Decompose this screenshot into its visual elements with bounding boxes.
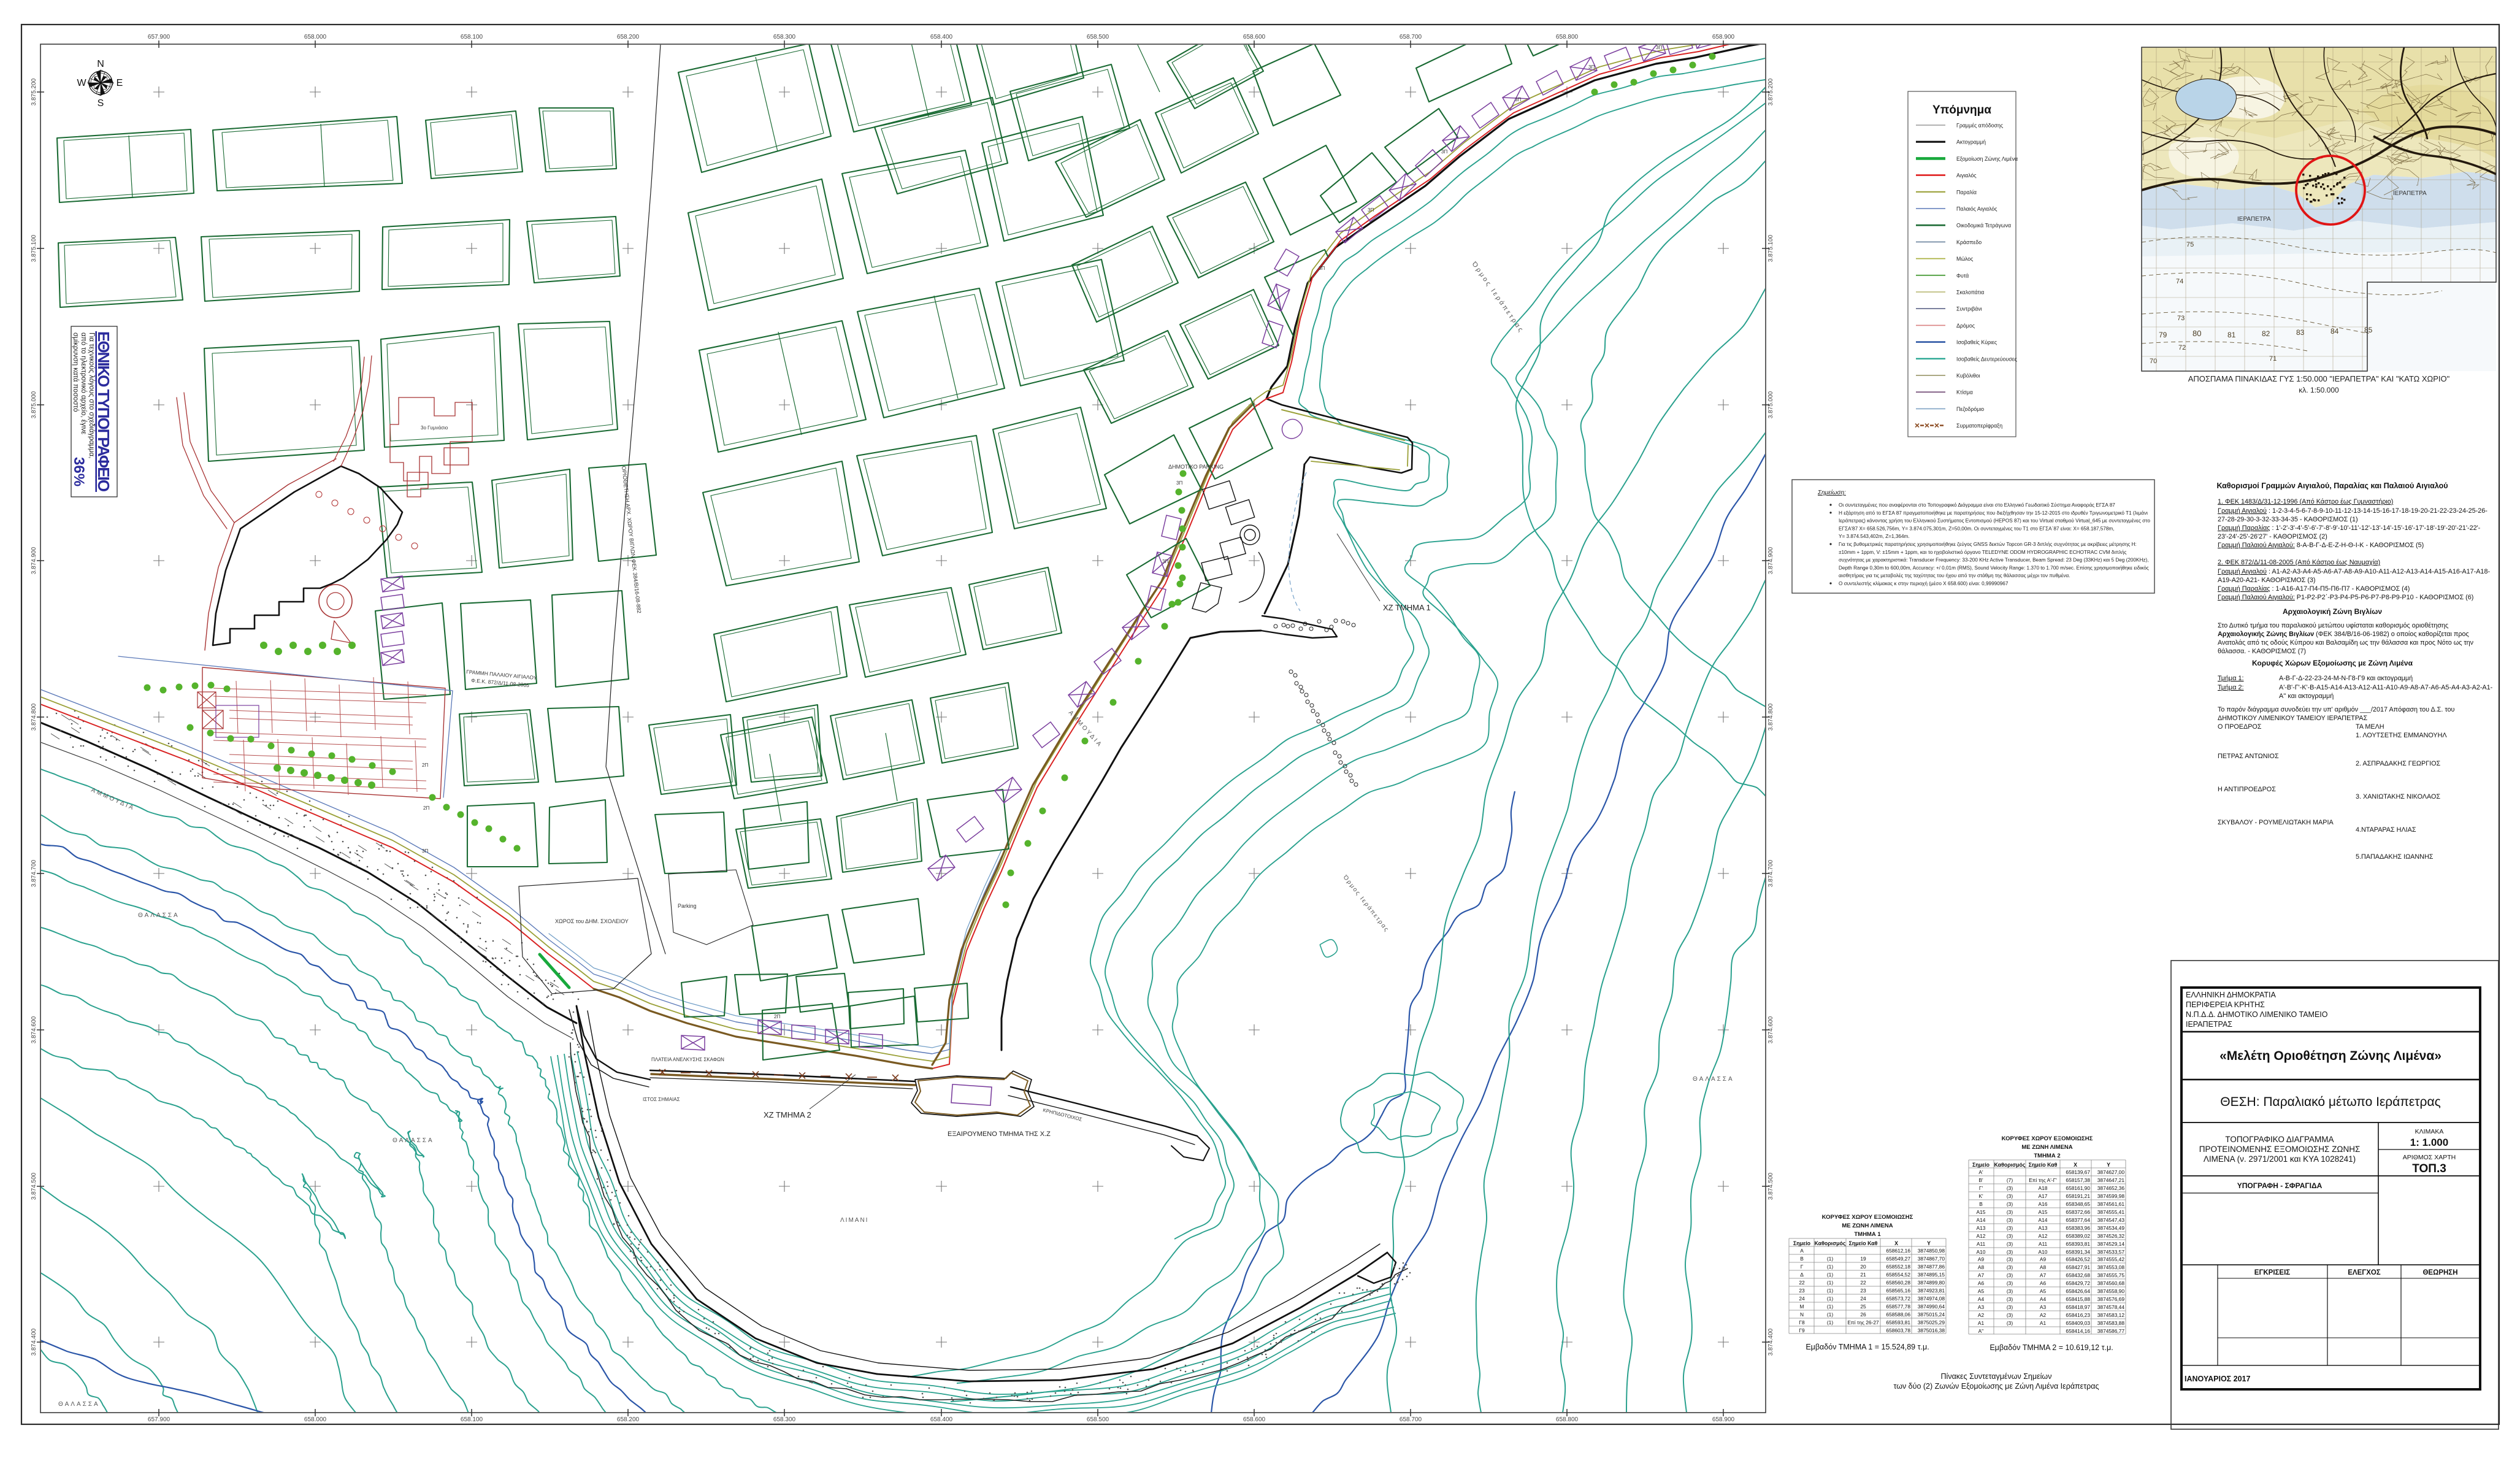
svg-text:ΕΛΛΗΝΙΚΗ ΔΗΜΟΚΡΑΤΙΑ: ΕΛΛΗΝΙΚΗ ΔΗΜΟΚΡΑΤΙΑ (2186, 991, 2276, 999)
svg-text:3Π: 3Π (1441, 149, 1447, 155)
svg-text:Α'-Β'-Γ'-Κ'-Β-Α15-Α14-Α13-Α12-: Α'-Β'-Γ'-Κ'-Β-Α15-Α14-Α13-Α12-Α11-Α10-Α9… (2279, 684, 2493, 691)
svg-text:36%: 36% (71, 457, 87, 486)
svg-text:ΜΕ ΖΩΝΗ ΛΙΜΕΝΑ: ΜΕ ΖΩΝΗ ΛΙΜΕΝΑ (1842, 1222, 1893, 1229)
svg-text:80: 80 (2193, 329, 2201, 338)
svg-text:Α13: Α13 (1977, 1225, 1986, 1231)
svg-text:ΧΩΡΟΣ του ΔΗΜ. ΣΧΟΛΕΙΟΥ: ΧΩΡΟΣ του ΔΗΜ. ΣΧΟΛΕΙΟΥ (555, 918, 629, 924)
svg-text:Γραμμή Παλαιού Αιγιαλού: Ρ1-Ρ: Γραμμή Παλαιού Αιγιαλού: Ρ1-Ρ2-Ρ2΄-Ρ3-Ρ4… (2218, 594, 2473, 601)
svg-text:ΙΕΡΑΠΕΤΡΑ: ΙΕΡΑΠΕΤΡΑ (2237, 216, 2271, 223)
svg-text:Επί της 26-27: Επί της 26-27 (1847, 1319, 1879, 1326)
svg-text:Α11: Α11 (2039, 1241, 2048, 1247)
svg-text:658549,27: 658549,27 (1886, 1256, 1910, 1262)
svg-text:των δύο (2) Ζωνών Εξομοίωσης μ: των δύο (2) Ζωνών Εξομοίωσης με Ζώνη Λιμ… (1893, 1382, 2099, 1391)
svg-text:71: 71 (2269, 355, 2277, 363)
svg-text:Α16: Α16 (2039, 1201, 2048, 1207)
svg-text:3874627,00: 3874627,00 (2097, 1169, 2125, 1175)
svg-text:Ισοβαθείς Δευτερεύουσες: Ισοβαθείς Δευτερεύουσες (1956, 356, 2017, 362)
svg-text:Α3: Α3 (2040, 1304, 2047, 1310)
svg-text:(7): (7) (2007, 1177, 2013, 1183)
svg-text:3874558,90: 3874558,90 (2097, 1288, 2125, 1294)
svg-text:75: 75 (2186, 241, 2194, 248)
svg-text:3.875.100: 3.875.100 (31, 234, 37, 262)
svg-text:Κράσπεδο: Κράσπεδο (1956, 239, 1982, 245)
svg-text:1. ΦΕΚ 1483/Δ/31-12-1996 (Από: 1. ΦΕΚ 1483/Δ/31-12-1996 (Από Κάστρο έως… (2218, 498, 2393, 505)
svg-text:(1): (1) (1827, 1272, 1833, 1278)
svg-text:Α6: Α6 (1978, 1280, 1985, 1286)
svg-text:658.700: 658.700 (1400, 34, 1422, 40)
svg-text:658565,16: 658565,16 (1886, 1288, 1910, 1294)
svg-text:3875016,38: 3875016,38 (1918, 1327, 1945, 1334)
svg-text:658418,97: 658418,97 (2066, 1304, 2090, 1310)
svg-text:3Π: 3Π (1176, 480, 1182, 486)
svg-text:Α2: Α2 (2040, 1312, 2047, 1318)
svg-text:2. ΦΕΚ 872/Δ/11-08-2005 (Από Κ: 2. ΦΕΚ 872/Δ/11-08-2005 (Από Κάστρο έως … (2218, 559, 2380, 566)
svg-text:ΣΚΥΒΑΛΟΥ - ΡΟΥΜΕΛΙΩΤΑΚΗ ΜΑΡΙΑ: ΣΚΥΒΑΛΟΥ - ΡΟΥΜΕΛΙΩΤΑΚΗ ΜΑΡΙΑ (2218, 819, 2334, 826)
svg-text:658554,52: 658554,52 (1886, 1272, 1910, 1278)
svg-text:ΠΡΟΤΕΙΝΟΜΕΝΗΣ ΕΞΟΜΟΙΩΣΗΣ ΖΩΝΗΣ: ΠΡΟΤΕΙΝΟΜΕΝΗΣ ΕΞΟΜΟΙΩΣΗΣ ΖΩΝΗΣ (2199, 1145, 2361, 1154)
svg-text:20: 20 (1860, 1264, 1866, 1270)
svg-text:3874974,08: 3874974,08 (1918, 1295, 1945, 1302)
svg-text:Ν: Ν (1800, 1311, 1804, 1318)
svg-text:Y: Y (1927, 1240, 1931, 1246)
svg-text:E: E (117, 78, 123, 88)
svg-text:3874529,14: 3874529,14 (2097, 1241, 2125, 1247)
svg-text:ΑΠΟΣΠΑΜΑ ΠΙΝΑΚΙΔΑΣ ΓΥΣ 1:50.00: ΑΠΟΣΠΑΜΑ ΠΙΝΑΚΙΔΑΣ ΓΥΣ 1:50.000 "ΙΕΡΑΠΕΤ… (2188, 374, 2450, 383)
svg-text:Α9: Α9 (2040, 1256, 2047, 1262)
svg-text:ΙΣΤΟΣ ΣΗΜΑΙΑΣ: ΙΣΤΟΣ ΣΗΜΑΙΑΣ (643, 1097, 680, 1102)
svg-text:2Π: 2Π (422, 762, 428, 768)
svg-text:ΥΠΟΓΡΑΦΗ - ΣΦΡΑΓΙΔΑ: ΥΠΟΓΡΑΦΗ - ΣΦΡΑΓΙΔΑ (2237, 1181, 2323, 1190)
svg-text:22: 22 (1860, 1280, 1866, 1286)
svg-text:658377,64: 658377,64 (2066, 1217, 2090, 1223)
svg-text:ΚΟΡΥΦΕΣ ΧΩΡΟΥ ΕΞΟΜΟΙΩΣΗΣ: ΚΟΡΥΦΕΣ ΧΩΡΟΥ ΕΞΟΜΟΙΩΣΗΣ (2002, 1135, 2093, 1142)
svg-text:ΕΛΕΓΧΟΣ: ΕΛΕΓΧΟΣ (2348, 1269, 2381, 1276)
svg-text:ΘΑΛΑΣΣΑ: ΘΑΛΑΣΣΑ (393, 1137, 434, 1144)
svg-text:Α11: Α11 (1977, 1241, 1986, 1247)
svg-text:Υ= 3.874.543,402m, Ζ=1,364m.: Υ= 3.874.543,402m, Ζ=1,364m. (1839, 534, 1910, 539)
svg-text:3.875.200: 3.875.200 (31, 78, 37, 106)
svg-text:21: 21 (1860, 1272, 1866, 1278)
svg-text:ΚΟΡΥΦΕΣ ΧΩΡΟΥ ΕΞΟΜΟΙΩΣΗΣ: ΚΟΡΥΦΕΣ ΧΩΡΟΥ ΕΞΟΜΟΙΩΣΗΣ (1822, 1214, 1913, 1221)
svg-text:Α9: Α9 (1978, 1256, 1985, 1262)
svg-text:(3): (3) (2007, 1296, 2013, 1302)
svg-text:658.500: 658.500 (1087, 34, 1109, 40)
svg-text:(1): (1) (1827, 1295, 1833, 1302)
svg-text:Α-Β-Γ-Δ-22-23-24-Μ-Ν-Γ8-Γ9 και: Α-Β-Γ-Δ-22-23-24-Μ-Ν-Γ8-Γ9 και ακτογραμμ… (2279, 675, 2413, 682)
svg-text:Συρματοπερίφραξη: Συρματοπερίφραξη (1956, 423, 2002, 429)
svg-text:658573,72: 658573,72 (1886, 1295, 1910, 1302)
svg-text:Κτίσμα: Κτίσμα (1956, 390, 1973, 396)
svg-text:ΔΗΜΟΤΙΚΟΥ ΛΙΜΕΝΙΚΟΥ ΤΑΜΕΙΟΥ ΙΕ: ΔΗΜΟΤΙΚΟΥ ΛΙΜΕΝΙΚΟΥ ΤΑΜΕΙΟΥ ΙΕΡΑΠΕΤΡΑΣ (2218, 715, 2368, 722)
svg-text:658161,90: 658161,90 (2066, 1185, 2090, 1191)
svg-text:Σημείο: Σημείο (1972, 1162, 1990, 1168)
svg-text:3874850,98: 3874850,98 (1918, 1248, 1945, 1254)
svg-text:ΘΕΣΗ: Παραλιακό μέτωπο Ιεράπετ: ΘΕΣΗ: Παραλιακό μέτωπο Ιεράπετρας (2220, 1095, 2441, 1109)
svg-text:(1): (1) (1827, 1311, 1833, 1318)
svg-text:Γραμμή Αιγιαλού : Α1-Α2-Α3-Α4: Γραμμή Αιγιαλού : Α1-Α2-Α3-Α4-Α5-Α6-Α7-Α… (2218, 568, 2490, 575)
svg-text:Α6: Α6 (2040, 1280, 2047, 1286)
svg-text:658416,23: 658416,23 (2066, 1312, 2090, 1318)
svg-text:(1): (1) (1827, 1319, 1833, 1326)
svg-text:Α7: Α7 (1978, 1272, 1985, 1278)
svg-text:X: X (1894, 1240, 1898, 1246)
svg-text:Οι συντεταγμένες που αναφέροντ: Οι συντεταγμένες που αναφέρονται στο Τοπ… (1839, 502, 2115, 508)
svg-text:658391,34: 658391,34 (2066, 1249, 2090, 1255)
svg-text:Α8: Α8 (1978, 1264, 1985, 1270)
svg-text:(3): (3) (2007, 1264, 2013, 1270)
svg-text:3. ΧΑΝΙΩΤΑΚΗΣ ΝΙΚΟΛΑΟΣ: 3. ΧΑΝΙΩΤΑΚΗΣ ΝΙΚΟΛΑΟΣ (2356, 793, 2440, 800)
svg-text:(3): (3) (2007, 1201, 2013, 1207)
svg-text:Α'' και ακτογραμμή: Α'' και ακτογραμμή (2279, 693, 2334, 700)
svg-text:ΚΛΙΜΑΚΑ: ΚΛΙΜΑΚΑ (2415, 1128, 2444, 1135)
svg-text:658.300: 658.300 (773, 34, 796, 40)
svg-text:Α7: Α7 (2040, 1272, 2047, 1278)
svg-text:Δρόμος: Δρόμος (1956, 323, 1975, 329)
svg-text:Εξομοίωση Ζώνης Λιμένα: Εξομοίωση Ζώνης Λιμένα (1956, 156, 2018, 162)
svg-text:3874652,36: 3874652,36 (2097, 1185, 2125, 1191)
svg-text:658348,65: 658348,65 (2066, 1201, 2090, 1207)
svg-text:ΠΛΑΤΕΙΑ ΑΝΕΛΚΥΣΗΣ ΣΚΑΦΩΝ: ΠΛΑΤΕΙΑ ΑΝΕΛΚΥΣΗΣ ΣΚΑΦΩΝ (651, 1057, 724, 1062)
svg-text:3874576,69: 3874576,69 (2097, 1296, 2125, 1302)
svg-text:3.875.000: 3.875.000 (31, 391, 37, 418)
svg-text:2. ΑΣΠΡΑΔΑΚΗΣ ΓΕΩΡΓΙΟΣ: 2. ΑΣΠΡΑΔΑΚΗΣ ΓΕΩΡΓΙΟΣ (2356, 760, 2441, 767)
svg-text:658139,67: 658139,67 (2066, 1169, 2090, 1175)
svg-text:ΘΑΛΑΣΣΑ: ΘΑΛΑΣΣΑ (1693, 1076, 1734, 1083)
svg-text:Ανατολάς από τις οδούς Κύπρου: Ανατολάς από τις οδούς Κύπρου και Βαλσαμ… (2218, 639, 2473, 647)
svg-text:ΑΡΙΘΜΟΣ ΧΑΡΤΗ: ΑΡΙΘΜΟΣ ΧΑΡΤΗ (2403, 1154, 2456, 1161)
svg-text:23'-24'-25'-26'27' - ΚΑΘΟΡΙΣΜΟ: 23'-24'-25'-26'27' - ΚΑΘΟΡΙΣΜΟΣ (2) (2218, 533, 2327, 540)
svg-text:658.000: 658.000 (304, 1416, 327, 1423)
svg-text:(1): (1) (1827, 1280, 1833, 1286)
svg-text:Α': Α' (1978, 1169, 1983, 1175)
svg-text:3ο Γυμνάσιο: 3ο Γυμνάσιο (421, 425, 448, 431)
svg-text:84: 84 (2330, 327, 2339, 336)
svg-text:Ο ΠΡΟΕΔΡΟΣ: Ο ΠΡΟΕΔΡΟΣ (2218, 723, 2262, 731)
svg-text:82: 82 (2262, 329, 2270, 338)
svg-text:Σκαλοπάτια: Σκαλοπάτια (1956, 290, 1984, 296)
svg-text:Depth Range 0,30m to 600,00m,: Depth Range 0,30m to 600,00m, Accuracy: … (1839, 565, 2149, 570)
svg-text:Τμήμα 1:: Τμήμα 1: (2218, 675, 2244, 682)
svg-text:72: 72 (2178, 344, 2186, 351)
svg-text:73: 73 (2177, 315, 2185, 322)
svg-text:27-28-29-30-3-32-33-34-35 - ΚΑ: 27-28-29-30-3-32-33-34-35 - ΚΑΘΟΡΙΣΜΟΣ (… (2218, 516, 2358, 523)
svg-text:(3): (3) (2007, 1272, 2013, 1278)
svg-text:Αιγιαλός: Αιγιαλός (1956, 172, 1977, 178)
svg-text:Α: Α (1800, 1248, 1804, 1254)
svg-text:Καθορισμός: Καθορισμός (1815, 1240, 1846, 1246)
svg-text:Β': Β' (1978, 1177, 1983, 1183)
svg-text:3874555,75: 3874555,75 (2097, 1272, 2125, 1278)
svg-text:658427,91: 658427,91 (2066, 1264, 2090, 1270)
svg-text:(3): (3) (2007, 1256, 2013, 1262)
svg-text:3Π: 3Π (1319, 266, 1325, 271)
svg-text:ΤΜΗΜΑ 2: ΤΜΗΜΑ 2 (2034, 1153, 2060, 1159)
svg-text:658.200: 658.200 (617, 1416, 640, 1423)
svg-text:από το ηλεκτρονικό αρχείο, έγι: από το ηλεκτρονικό αρχείο, έγινε (80, 332, 87, 434)
svg-text:3874586,77: 3874586,77 (2097, 1328, 2125, 1334)
svg-text:ΜΕ ΖΩΝΗ ΛΙΜΕΝΑ: ΜΕ ΖΩΝΗ ΛΙΜΕΝΑ (2021, 1144, 2072, 1151)
svg-text:81: 81 (2227, 331, 2236, 339)
svg-text:Το παρόν διάγραμμα συνοδεύει τ: Το παρόν διάγραμμα συνοδεύει την υπ' αρι… (2218, 706, 2454, 713)
svg-text:Παλαιός Αιγιαλός: Παλαιός Αιγιαλός (1956, 206, 1997, 212)
svg-text:658.500: 658.500 (1087, 1416, 1109, 1423)
svg-text:Parking: Parking (678, 903, 697, 909)
svg-text:S: S (98, 98, 104, 109)
svg-text:ΧΖ ΤΜΗΜΑ 2: ΧΖ ΤΜΗΜΑ 2 (764, 1110, 811, 1119)
svg-text:658.400: 658.400 (930, 34, 953, 40)
svg-text:Ν.Π.Δ.Δ. ΔΗΜΟΤΙΚΟ ΛΙΜΕΝΙΚΟ ΤΑΜ: Ν.Π.Δ.Δ. ΔΗΜΟΤΙΚΟ ΛΙΜΕΝΙΚΟ ΤΑΜΕΙΟ (2186, 1010, 2328, 1019)
svg-text:658414,16: 658414,16 (2066, 1328, 2090, 1334)
svg-text:Παραλία: Παραλία (1956, 189, 1977, 195)
svg-text:Α'': Α'' (1978, 1328, 1984, 1334)
svg-text:ΛΙΜΕΝΑ (ν. 2971/2001 και ΚΥΑ 1: ΛΙΜΕΝΑ (ν. 2971/2001 και ΚΥΑ 1028241) (2204, 1154, 2356, 1164)
svg-text:Σημείο Καθ: Σημείο Καθ (1849, 1240, 1878, 1246)
svg-text:79: 79 (2159, 331, 2167, 339)
svg-text:658191,21: 658191,21 (2066, 1193, 2090, 1199)
svg-text:ΔΗΜΟΤΙΚΟ PARKING: ΔΗΜΟΤΙΚΟ PARKING (1168, 464, 1224, 470)
svg-text:συχνότητας με χαρακτηριστικά:: συχνότητας με χαρακτηριστικά: Transducer… (1839, 558, 2149, 563)
svg-text:658.600: 658.600 (1243, 34, 1266, 40)
svg-text:24: 24 (1860, 1295, 1866, 1302)
svg-text:Γ8: Γ8 (1799, 1319, 1805, 1326)
svg-text:3874555,42: 3874555,42 (2097, 1256, 2125, 1262)
svg-text:658560,28: 658560,28 (1886, 1280, 1910, 1286)
svg-text:3Π: 3Π (1162, 559, 1168, 564)
svg-text:(1): (1) (1827, 1303, 1833, 1310)
svg-text:658383,96: 658383,96 (2066, 1225, 2090, 1231)
svg-text:Σημείο: Σημείο (1793, 1240, 1811, 1246)
svg-text:ΙΕΡΑΠΕΤΡΑΣ: ΙΕΡΑΠΕΤΡΑΣ (2186, 1020, 2232, 1029)
svg-text:658588,06: 658588,06 (1886, 1311, 1910, 1318)
svg-text:Y: Y (2107, 1162, 2110, 1168)
svg-text:3874555,41: 3874555,41 (2097, 1209, 2125, 1215)
svg-text:Καθορισμός: Καθορισμός (1994, 1162, 2026, 1168)
svg-text:(3): (3) (2007, 1312, 2013, 1318)
svg-text:658157,38: 658157,38 (2066, 1177, 2090, 1183)
svg-text:Α10: Α10 (2039, 1249, 2048, 1255)
svg-text:(3): (3) (2007, 1217, 2013, 1223)
svg-text:Α13: Α13 (2039, 1225, 2048, 1231)
svg-text:3.874.600: 3.874.600 (31, 1016, 37, 1043)
svg-text:Επί της Α'-Γ': Επί της Α'-Γ' (2029, 1177, 2057, 1183)
svg-text:658612,16: 658612,16 (1886, 1248, 1910, 1254)
svg-text:N: N (97, 59, 104, 69)
svg-text:2Π: 2Π (423, 805, 429, 811)
svg-text:ΠΕΤΡΑΣ ΑΝΤΩΝΙΟΣ: ΠΕΤΡΑΣ ΑΝΤΩΝΙΟΣ (2218, 753, 2279, 760)
svg-text:25: 25 (1860, 1303, 1866, 1310)
svg-text:3875015,24: 3875015,24 (1918, 1311, 1945, 1318)
svg-text:Πεζοδρόμιο: Πεζοδρόμιο (1956, 406, 1984, 412)
svg-text:658.900: 658.900 (1712, 34, 1735, 40)
svg-text:Κορυφές Χώρων Εξομοίωσης με Ζώ: Κορυφές Χώρων Εξομοίωσης με Ζώνη Λιμένα (2252, 659, 2413, 667)
svg-text:2Π: 2Π (774, 1014, 780, 1019)
svg-text:ΙΑΝΟΥΑΡΙΟΣ 2017: ΙΑΝΟΥΑΡΙΟΣ 2017 (2185, 1375, 2250, 1383)
svg-text:(3): (3) (2007, 1304, 2013, 1310)
svg-text:Σημείωση:: Σημείωση: (1817, 489, 1846, 496)
svg-text:3.874.400: 3.874.400 (31, 1328, 37, 1356)
svg-text:Γραμμές απόδοσης: Γραμμές απόδοσης (1956, 123, 2003, 129)
svg-text:Β: Β (1979, 1201, 1983, 1207)
svg-text:3874899,80: 3874899,80 (1918, 1280, 1945, 1286)
svg-text:(3): (3) (2007, 1233, 2013, 1239)
svg-text:658603,78: 658603,78 (1886, 1327, 1910, 1334)
svg-text:ΘΑΛΑΣΣΑ: ΘΑΛΑΣΣΑ (138, 912, 180, 919)
svg-text:Οικοδομικά Τετράγωνα: Οικοδομικά Τετράγωνα (1956, 223, 2011, 229)
svg-text:3.874.500: 3.874.500 (31, 1172, 37, 1200)
svg-text:(3): (3) (2007, 1193, 2013, 1199)
svg-text:23: 23 (1799, 1288, 1805, 1294)
svg-text:Α15: Α15 (2039, 1209, 2048, 1215)
svg-text:658426,52: 658426,52 (2066, 1256, 2090, 1262)
svg-text:Ο συντελεστής κλίμακας κ στην: Ο συντελεστής κλίμακας κ στην περιοχή (μ… (1839, 581, 2009, 586)
svg-text:658393,81: 658393,81 (2066, 1241, 2090, 1247)
svg-text:3874560,68: 3874560,68 (2097, 1280, 2125, 1286)
svg-text:Γραμμή Αιγιαλού : 1-2-3-4-5-6-: Γραμμή Αιγιαλού : 1-2-3-4-5-6-7-8-9-10-1… (2218, 507, 2487, 515)
svg-text:θάλασσα. - ΚΑΘΟΡΙΣΜΟΣ (7): θάλασσα. - ΚΑΘΟΡΙΣΜΟΣ (7) (2218, 648, 2306, 655)
svg-text:(1): (1) (1827, 1288, 1833, 1294)
svg-text:658.600: 658.600 (1243, 1416, 1266, 1423)
svg-text:W: W (77, 78, 86, 88)
svg-text:658389,02: 658389,02 (2066, 1233, 2090, 1239)
svg-text:3.874.800: 3.874.800 (31, 703, 37, 731)
svg-text:Α12: Α12 (1977, 1233, 1986, 1239)
svg-text:Α19-Α20-Α21- ΚΑΘΟΡΙΣΜΟΣ (3): Α19-Α20-Α21- ΚΑΘΟΡΙΣΜΟΣ (3) (2218, 577, 2316, 584)
svg-text:Φυτά: Φυτά (1956, 272, 1969, 278)
svg-text:ΕΞΑΙΡΟΥΜΕΝΟ ΤΜΗΜΑ ΤΗΣ Χ.Ζ: ΕΞΑΙΡΟΥΜΕΝΟ ΤΜΗΜΑ ΤΗΣ Χ.Ζ (948, 1130, 1051, 1138)
svg-text:(3): (3) (2007, 1320, 2013, 1326)
svg-text:658.700: 658.700 (1400, 1416, 1422, 1423)
svg-text:Α8: Α8 (2040, 1264, 2047, 1270)
svg-text:Α10: Α10 (1977, 1249, 1986, 1255)
svg-text:657.900: 657.900 (148, 34, 170, 40)
svg-text:Γραμμή Παραλίας : 1-Α16-Α17-Π4: Γραμμή Παραλίας : 1-Α16-Α17-Π4-Π5-Π6-Π7 … (2218, 585, 2410, 593)
svg-text:ΕΓΚΡΙΣΕΙΣ: ΕΓΚΡΙΣΕΙΣ (2254, 1269, 2291, 1276)
svg-text:3874583,12: 3874583,12 (2097, 1312, 2125, 1318)
svg-text:3Π: 3Π (1588, 64, 1595, 70)
svg-text:ΕΓΣΑ'87 Χ= 658.526,756m, Υ= 3.: ΕΓΣΑ'87 Χ= 658.526,756m, Υ= 3.874.075,30… (1839, 525, 2115, 531)
svg-text:3874533,57: 3874533,57 (2097, 1249, 2125, 1255)
svg-text:«Μελέτη Οριοθέτηση Ζώνης Λιμέ: «Μελέτη Οριοθέτηση Ζώνης Λιμένα» (2219, 1049, 2441, 1063)
svg-text:ΤΑ ΜΕΛΗ: ΤΑ ΜΕΛΗ (2356, 723, 2384, 731)
svg-text:3874578,44: 3874578,44 (2097, 1304, 2125, 1310)
svg-text:Ιεράπετρας) κάνοντας χρήση του: Ιεράπετρας) κάνοντας χρήση του Ελληνικού… (1839, 518, 2150, 524)
svg-text:(1): (1) (1827, 1264, 1833, 1270)
svg-text:3Π: 3Π (1656, 45, 1662, 50)
svg-text:Η εξάρτηση από το ΕΓΣΑ 87 πραγ: Η εξάρτηση από το ΕΓΣΑ 87 πραγματοποιήθη… (1839, 510, 2148, 516)
svg-text:Δ: Δ (1800, 1272, 1804, 1278)
svg-text:Α3: Α3 (1978, 1304, 1985, 1310)
svg-text:Πίνακες Συντεταγμένων Σημείων: Πίνακες Συντεταγμένων Σημείων (1941, 1372, 2052, 1381)
svg-text:658593,81: 658593,81 (1886, 1319, 1910, 1326)
svg-text:Κυβόλιθοι: Κυβόλιθοι (1956, 373, 1980, 379)
svg-text:Μώλος: Μώλος (1956, 256, 1973, 262)
svg-text:Α5: Α5 (2040, 1288, 2047, 1294)
svg-text:3875025,29: 3875025,29 (1918, 1319, 1945, 1326)
svg-text:(1): (1) (1827, 1256, 1833, 1262)
svg-text:3.874.700: 3.874.700 (31, 859, 37, 887)
svg-text:658552,18: 658552,18 (1886, 1264, 1910, 1270)
svg-text:Τμήμα 2:: Τμήμα 2: (2218, 684, 2244, 691)
svg-text:3874526,32: 3874526,32 (2097, 1233, 2125, 1239)
svg-text:Αρχαιολογική Ζώνη Βιγλίων: Αρχαιολογική Ζώνη Βιγλίων (2283, 607, 2382, 616)
svg-text:ΕΘΝΙΚΟ ΤΥΠΟΓΡΑΦΕΙΟ: ΕΘΝΙΚΟ ΤΥΠΟΓΡΑΦΕΙΟ (94, 331, 113, 492)
svg-text:Γραμμή Παλαιού Αιγιαλού: 8-Α-: Γραμμή Παλαιού Αιγιαλού: 8-Α-Β-Γ-Δ-Ε-Ζ-Η… (2218, 542, 2424, 549)
svg-text:1: 1.000: 1: 1.000 (2410, 1137, 2448, 1148)
svg-text:657.900: 657.900 (148, 1416, 170, 1423)
svg-text:3874534,49: 3874534,49 (2097, 1225, 2125, 1231)
svg-text:±10mm + 1ppm, V: ±15mm + 1ppm,: ±10mm + 1ppm, V: ±15mm + 1ppm, και το ηχ… (1839, 550, 2127, 555)
svg-text:3874583,88: 3874583,88 (2097, 1320, 2125, 1326)
svg-text:Γ: Γ (1801, 1264, 1804, 1270)
svg-text:Αρχαιολογικής Ζώνης Βιγλίων (Φ: Αρχαιολογικής Ζώνης Βιγλίων (ΦΕΚ 384/Β/1… (2218, 631, 2469, 638)
svg-text:3.874.900: 3.874.900 (31, 547, 37, 574)
svg-text:658577,78: 658577,78 (1886, 1303, 1910, 1310)
svg-text:ΘΕΩΡΗΣΗ: ΘΕΩΡΗΣΗ (2422, 1269, 2457, 1276)
svg-text:3874895,15: 3874895,15 (1918, 1272, 1945, 1278)
svg-text:Συντριβάνι: Συντριβάνι (1956, 306, 1982, 312)
svg-text:70: 70 (2150, 358, 2157, 365)
svg-text:4.ΝΤΑΡΑΡΑΣ ΗΛΙΑΣ: 4.ΝΤΑΡΑΡΑΣ ΗΛΙΑΣ (2356, 826, 2416, 834)
svg-text:3Π: 3Π (1515, 97, 1521, 102)
svg-text:74: 74 (2176, 278, 2183, 285)
svg-text:Α2: Α2 (1978, 1312, 1985, 1318)
svg-text:Α14: Α14 (1977, 1217, 1986, 1223)
svg-text:3874599,98: 3874599,98 (2097, 1193, 2125, 1199)
svg-text:αισθητήρας για τις μεταβολές τ: αισθητήρας για τις μεταβολές της ταχύτητ… (1839, 573, 2070, 578)
svg-text:658.300: 658.300 (773, 1416, 796, 1423)
svg-text:658.000: 658.000 (304, 34, 327, 40)
svg-text:Α1: Α1 (2040, 1320, 2047, 1326)
svg-text:85: 85 (2364, 326, 2373, 334)
svg-text:Α5: Α5 (1978, 1288, 1985, 1294)
svg-text:(3): (3) (2007, 1225, 2013, 1231)
svg-text:3874647,21: 3874647,21 (2097, 1177, 2125, 1183)
svg-text:(3): (3) (2007, 1209, 2013, 1215)
svg-text:Α4: Α4 (1978, 1296, 1985, 1302)
svg-text:(3): (3) (2007, 1280, 2013, 1286)
svg-text:ΠΕΡΙΦΕΡΕΙΑ ΚΡΗΤΗΣ: ΠΕΡΙΦΕΡΕΙΑ ΚΡΗΤΗΣ (2186, 1000, 2265, 1009)
svg-text:ΧΖ ΤΜΗΜΑ 1: ΧΖ ΤΜΗΜΑ 1 (1383, 603, 1431, 612)
svg-text:3874561,61: 3874561,61 (2097, 1201, 2125, 1207)
svg-text:Γ9: Γ9 (1799, 1327, 1805, 1334)
svg-text:ΤΟΠ.3: ΤΟΠ.3 (2412, 1162, 2446, 1175)
svg-text:3Π: 3Π (1368, 207, 1374, 213)
svg-text:658409,03: 658409,03 (2066, 1320, 2090, 1326)
svg-text:Α1: Α1 (1978, 1320, 1985, 1326)
svg-text:3874547,43: 3874547,43 (2097, 1217, 2125, 1223)
svg-text:Για τεχνικούς λόγους στο σχεδι: Για τεχνικούς λόγους στο σχεδιάγραμμα, (88, 332, 95, 458)
svg-text:3874867,70: 3874867,70 (1918, 1256, 1945, 1262)
svg-text:ΤΜΗΜΑ 1: ΤΜΗΜΑ 1 (1854, 1231, 1881, 1238)
svg-text:23: 23 (1860, 1288, 1866, 1294)
svg-text:Εμβαδόν ΤΜΗΜΑ 1 = 15.524,89 τ.: Εμβαδόν ΤΜΗΜΑ 1 = 15.524,89 τ.μ. (1806, 1343, 1929, 1351)
svg-text:3874553,08: 3874553,08 (2097, 1264, 2125, 1270)
svg-text:658426,64: 658426,64 (2066, 1288, 2090, 1294)
svg-text:1. ΛΟΥΤΣΕΤΗΣ ΕΜΜΑΝΟΥΗΛ: 1. ΛΟΥΤΣΕΤΗΣ ΕΜΜΑΝΟΥΗΛ (2356, 732, 2447, 739)
svg-text:(3): (3) (2007, 1241, 2013, 1247)
svg-text:658432,68: 658432,68 (2066, 1272, 2090, 1278)
svg-text:3Π: 3Π (422, 848, 428, 854)
svg-text:19: 19 (1860, 1256, 1866, 1262)
svg-text:83: 83 (2296, 328, 2305, 337)
svg-text:Ακτογραμμή: Ακτογραμμή (1956, 139, 1986, 145)
svg-text:3874923,81: 3874923,81 (1918, 1288, 1945, 1294)
svg-text:Α12: Α12 (2039, 1233, 2048, 1239)
svg-text:(3): (3) (2007, 1288, 2013, 1294)
svg-text:ΘΑΛΑΣΣΑ: ΘΑΛΑΣΣΑ (58, 1401, 100, 1408)
svg-text:(3): (3) (2007, 1185, 2013, 1191)
svg-text:658.100: 658.100 (461, 34, 483, 40)
